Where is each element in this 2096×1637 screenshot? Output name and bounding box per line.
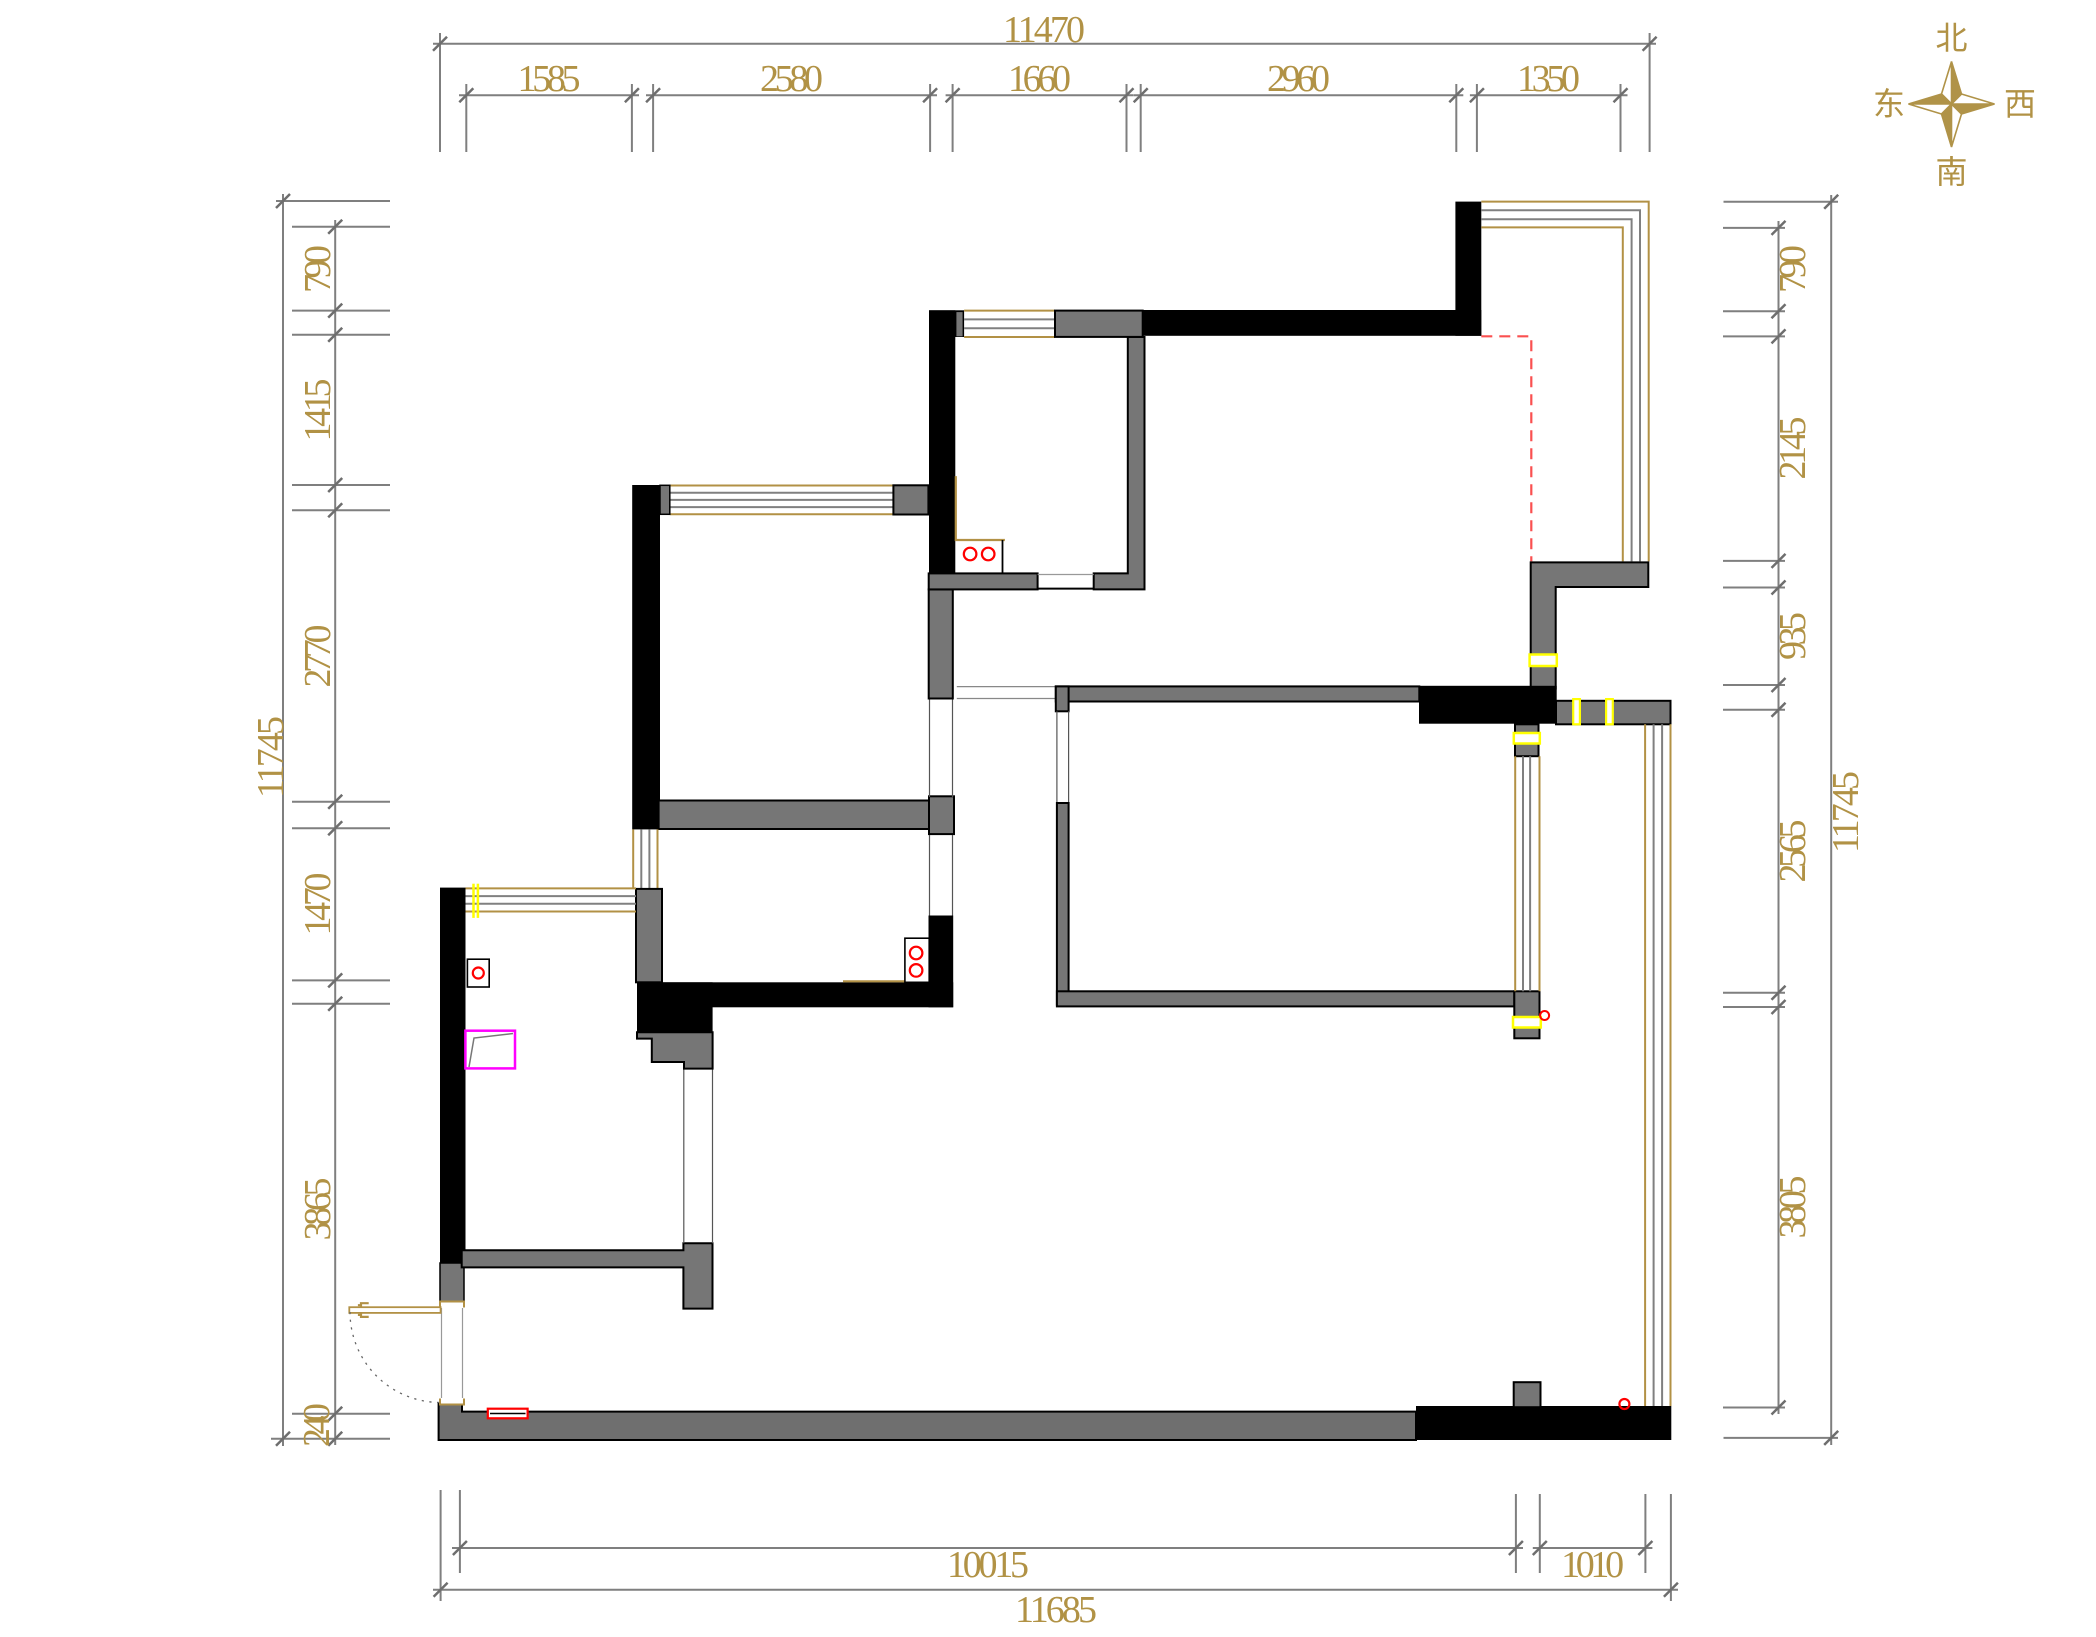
svg-text:1585: 1585 [518, 58, 581, 100]
svg-text:1415: 1415 [297, 379, 339, 442]
svg-text:2770: 2770 [297, 625, 339, 688]
svg-text:240: 240 [296, 1403, 338, 1447]
svg-text:2580: 2580 [760, 58, 823, 100]
svg-text:1470: 1470 [297, 873, 339, 936]
svg-text:2565: 2565 [1772, 820, 1814, 883]
svg-text:1350: 1350 [1517, 58, 1580, 100]
svg-text:2960: 2960 [1267, 58, 1330, 100]
svg-text:11685: 11685 [1015, 1589, 1097, 1631]
svg-text:790: 790 [1772, 245, 1814, 293]
svg-text:790: 790 [297, 245, 339, 293]
svg-text:11745: 11745 [250, 716, 292, 798]
svg-text:11470: 11470 [1003, 9, 1085, 51]
svg-text:东: 东 [1873, 86, 1905, 122]
svg-text:1010: 1010 [1561, 1544, 1624, 1586]
svg-text:10015: 10015 [947, 1544, 1029, 1586]
svg-text:南: 南 [1935, 154, 1967, 190]
svg-text:1660: 1660 [1008, 58, 1071, 100]
svg-text:北: 北 [1935, 20, 1967, 56]
svg-text:西: 西 [2004, 86, 2036, 122]
svg-text:2145: 2145 [1772, 417, 1814, 480]
svg-text:3865: 3865 [297, 1178, 339, 1241]
svg-text:11745: 11745 [1825, 771, 1867, 853]
svg-text:935: 935 [1772, 612, 1814, 660]
svg-text:3805: 3805 [1772, 1176, 1814, 1239]
